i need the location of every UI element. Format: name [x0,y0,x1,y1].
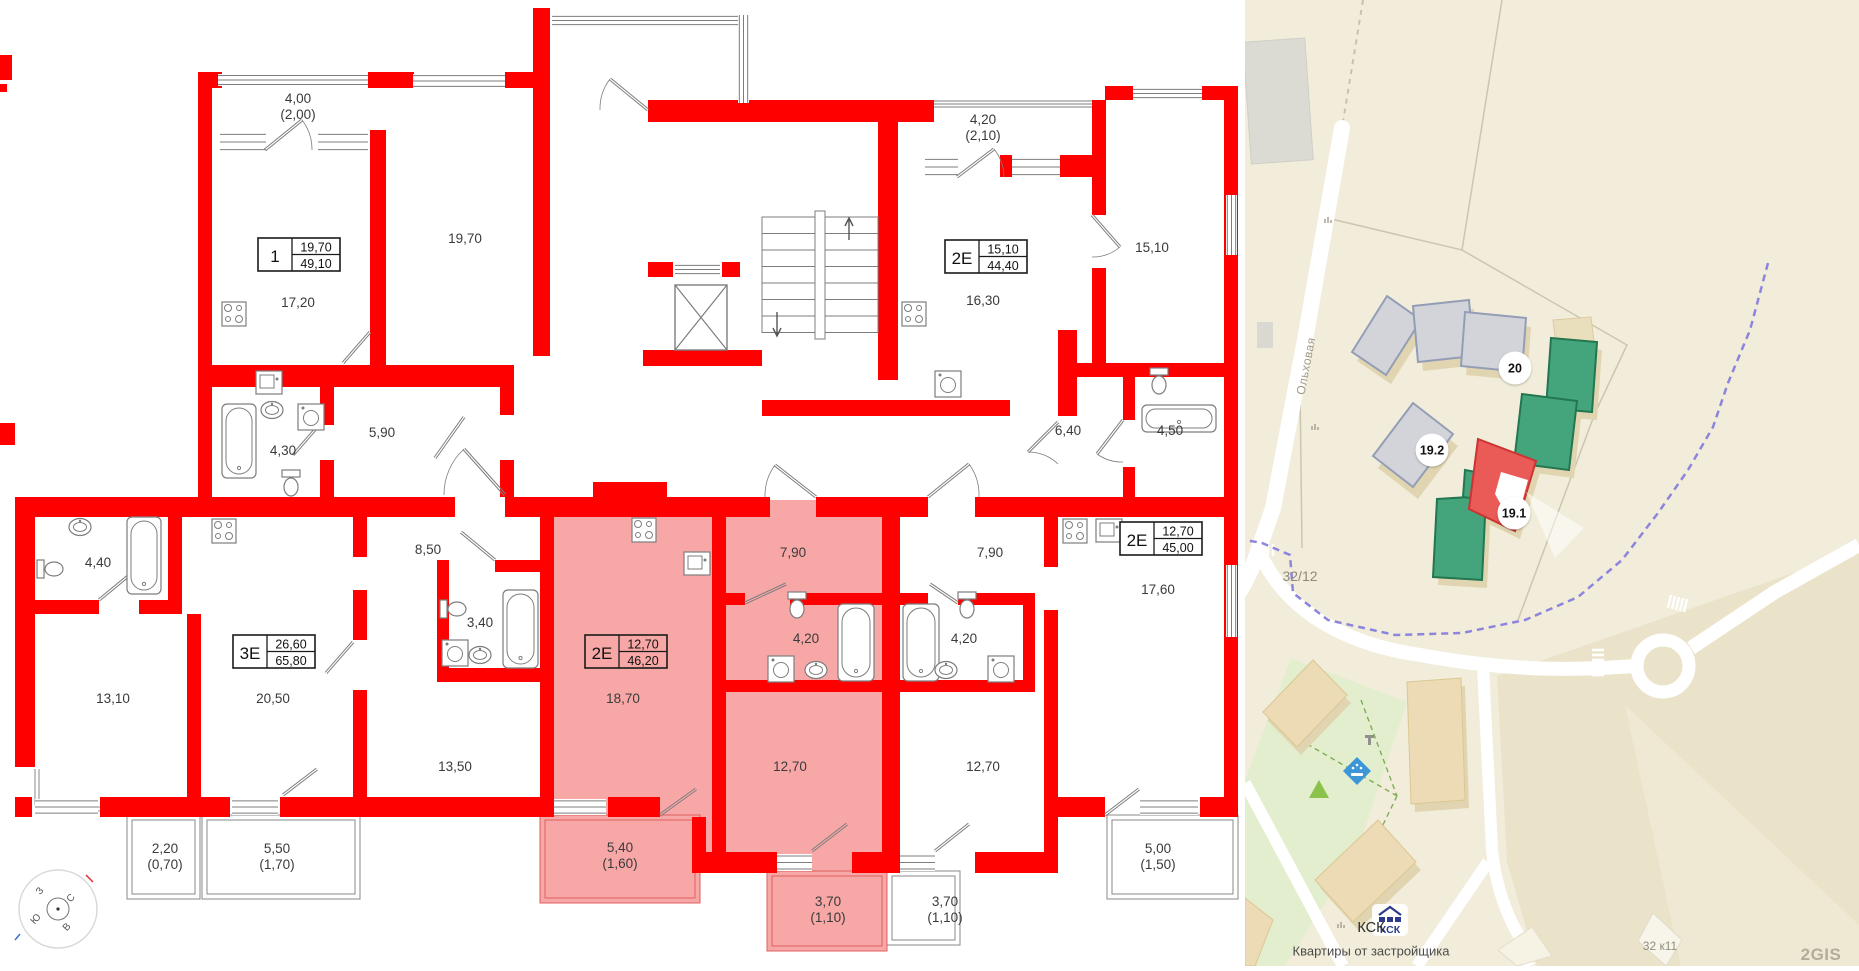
room-area-label: 7,90 [977,545,1003,560]
apartment-type: 2Е [952,249,973,268]
room-area-label: 6,40 [1055,423,1081,438]
wall [712,517,726,593]
wall [353,690,367,797]
wall [187,614,201,797]
wall [648,100,922,122]
wall [1044,517,1058,567]
page: 4,00(2,00)19,7017,204,305,904,20(2,10)15… [0,0,1859,966]
wall [15,497,455,517]
wall [643,350,762,366]
wall [593,482,667,510]
apartment-info-box: 2Е12,7045,00 [1120,522,1202,555]
wall [1060,155,1106,177]
room-area-label: 17,20 [281,295,315,310]
room-area-label: 12,70 [966,759,1000,774]
wall [882,517,900,873]
toilet-icon [1150,368,1168,375]
room-area-label: 3,70 [815,894,841,909]
wall [198,72,212,517]
apartment-total-area: 45,00 [1162,541,1193,555]
wall [368,72,414,88]
room-area-label: 4,20 [970,112,996,127]
room-area-label: 5,90 [369,425,395,440]
wall [1044,797,1058,873]
toilet-icon [282,470,300,477]
apartment-total-area: 46,20 [627,654,658,668]
room-area-label: 3,70 [932,894,958,909]
wall [1092,268,1106,377]
floor-plan-panel: 4,00(2,00)19,7017,204,305,904,20(2,10)15… [0,0,1245,966]
wall [898,593,928,605]
wall [852,852,900,873]
apartment-living-area: 12,70 [627,638,658,652]
wall [353,590,367,614]
building-small [1257,322,1273,348]
apartment-living-area: 15,10 [987,243,1018,257]
wall [540,517,554,817]
wall [353,517,367,557]
wall [15,797,32,817]
room-area-label: 5,00 [1145,841,1171,856]
wall [1058,330,1077,416]
room-area-sublabel: (2,00) [280,107,315,122]
apartment-living-area: 12,70 [1162,525,1193,539]
apartment-living-area: 19,70 [300,241,331,255]
wall [370,130,386,365]
room-area-label: 13,10 [96,691,130,706]
wall [320,460,334,517]
room-area-label: 4,20 [793,631,819,646]
room-area-sublabel: (1,50) [1140,857,1175,872]
room-area-label: 4,40 [85,555,111,570]
room-area-sublabel: (0,70) [147,857,182,872]
wall [692,852,777,873]
apartment-info-box: 2Е12,7046,20 [585,635,667,668]
room-area-label: 13,50 [438,759,472,774]
wall [0,55,12,80]
wall [353,614,367,640]
floor-plan: 4,00(2,00)19,7017,204,305,904,20(2,10)15… [0,0,1245,966]
toilet-icon [958,592,976,599]
wall [1123,467,1135,497]
stairs-up-arrow [845,218,853,240]
wall [712,593,726,873]
wall [29,600,99,614]
wall [533,8,550,356]
room-area-label: 18,70 [606,691,640,706]
room-area-label: 4,20 [951,631,977,646]
wall [608,797,660,817]
room-area-label: 4,30 [270,443,296,458]
wall [500,460,514,497]
wall [722,262,740,277]
room-area-label: 19,70 [448,231,482,246]
apartment-type: 1 [270,247,279,266]
room-area-label: 15,10 [1135,240,1169,255]
wall [495,560,540,572]
wall [1123,377,1135,420]
apartment-living-area: 26,60 [275,638,306,652]
room-area-label: 3,40 [467,615,493,630]
apartment-total-area: 49,10 [300,257,331,271]
building-number-badge[interactable]: 19.2 [1416,434,1449,467]
room-area-label: 2,20 [152,841,178,856]
room-area-sublabel: (2,10) [965,128,1000,143]
room-area-label: 12,70 [773,759,807,774]
wall [726,593,745,605]
wall [1023,605,1035,680]
toilet-icon [788,592,806,599]
wall [168,517,182,614]
room-area-label: 5,50 [264,841,290,856]
apartment-info-box: 3Е26,6065,80 [233,635,315,668]
map-canvas[interactable] [1245,0,1859,966]
wall [726,680,882,692]
building-number-badge[interactable]: 20 [1499,352,1532,385]
room-area-label: 17,60 [1141,582,1175,597]
apartment-total-area: 65,80 [275,654,306,668]
room-area-label: 5,40 [607,840,633,855]
wall [0,423,15,445]
toilet-icon [440,600,447,618]
wall [975,497,1238,517]
apartment-type: 2Е [1127,531,1148,550]
wall [437,668,540,682]
room-area-sublabel: (1,10) [927,910,962,925]
wall [15,497,35,767]
wall [816,497,928,517]
wall [1058,797,1105,817]
wall [1200,797,1238,817]
room-area-label: 7,90 [780,545,806,560]
room-area-label: 4,50 [1157,423,1183,438]
room-area-label: 4,00 [285,91,311,106]
wall [100,797,230,817]
wall [975,852,1044,873]
apartment-info-box: 2Е15,1044,40 [945,240,1027,273]
wall [648,262,673,277]
stairs-elevator [675,211,878,350]
apartment-type: 2Е [592,644,613,663]
wall [0,84,7,92]
wall [1105,86,1133,100]
compass-icon: ЗСЮВ [15,870,97,948]
room-area-sublabel: (1,10) [810,910,845,925]
stair-stringer [815,211,825,339]
wall [878,122,898,380]
wall [1000,155,1012,177]
room-area-label: 8,50 [415,542,441,557]
wall [280,797,552,817]
room-area-label: 16,30 [966,293,1000,308]
wall [762,400,1010,416]
building-footprint [1245,38,1313,164]
wall [500,365,514,415]
toilet-icon [37,560,44,578]
wall [922,100,934,122]
room-area-sublabel: (1,60) [602,856,637,871]
map-panel[interactable]: Ольховая 32/12 32 к11 2019.219.1 КСК КСК… [1245,0,1859,966]
room-area-label: 20,50 [256,691,290,706]
apartment-info-box: 119,7049,10 [258,238,340,271]
room-area-sublabel: (1,70) [259,857,294,872]
apartment-total-area: 44,40 [987,259,1018,273]
apartment-type: 3Е [240,644,261,663]
building-number-badge[interactable]: 19.1 [1498,497,1531,530]
